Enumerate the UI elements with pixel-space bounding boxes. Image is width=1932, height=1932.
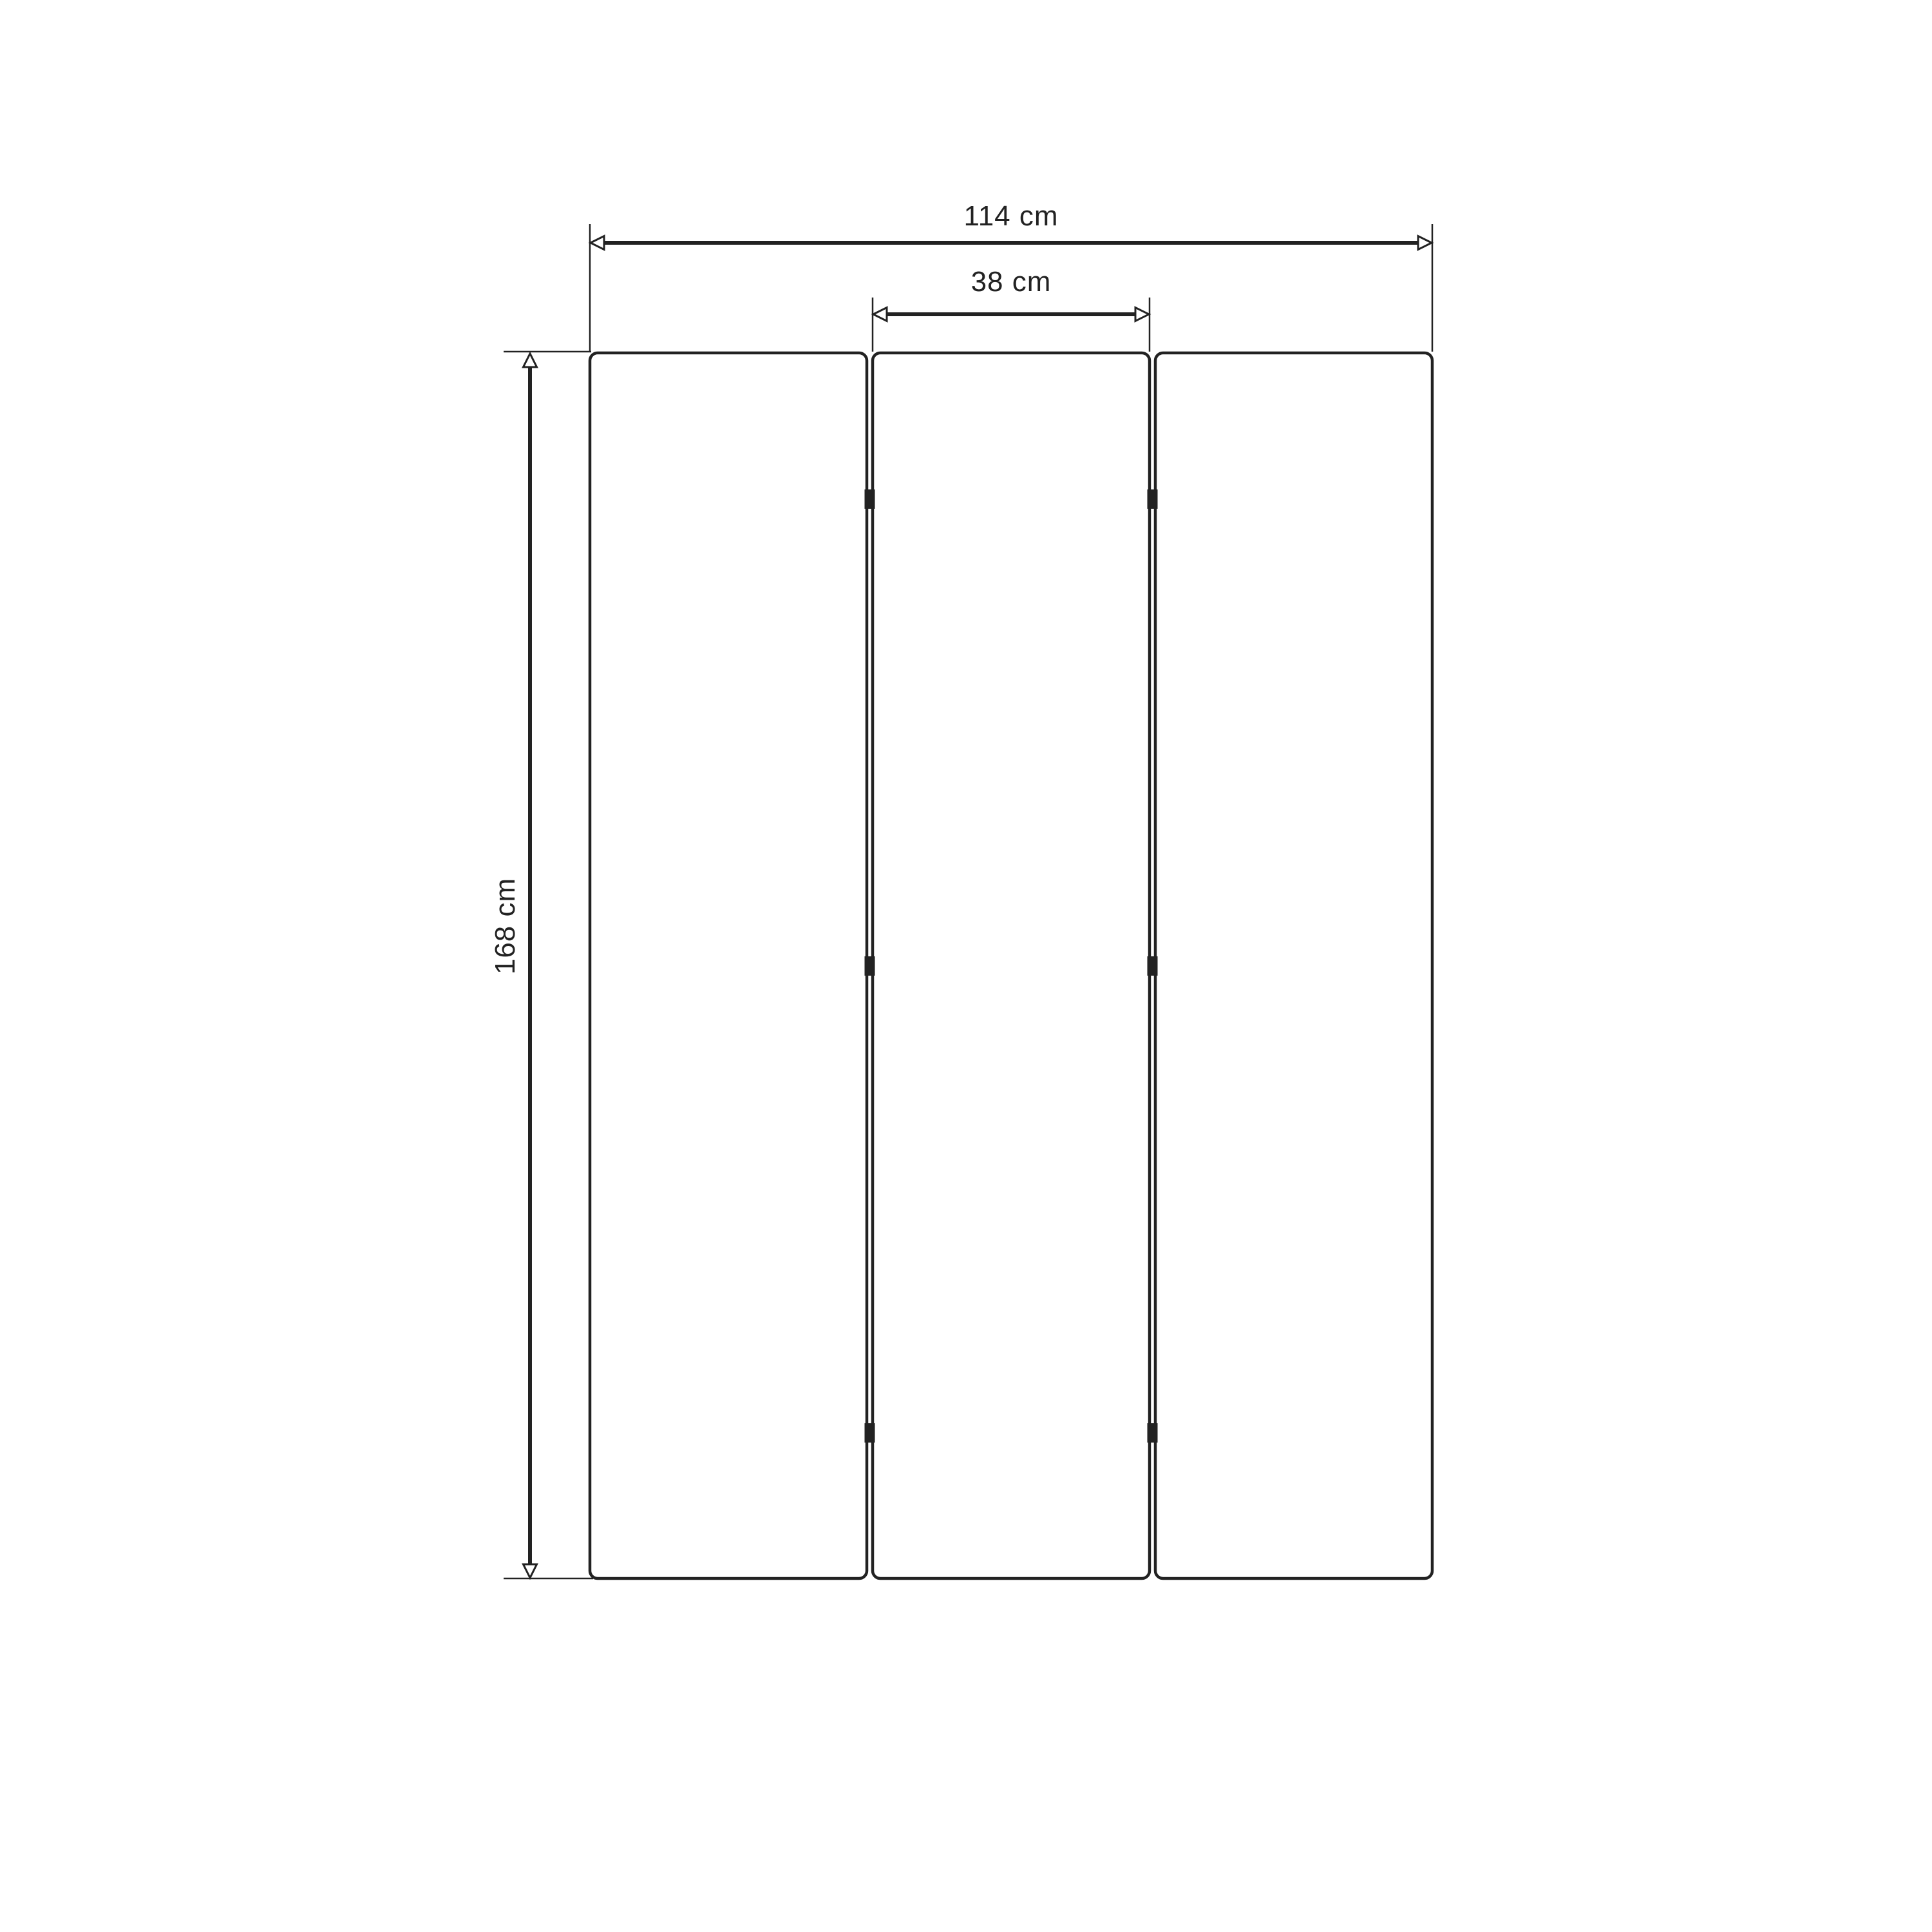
arrowhead-left-icon [873,308,887,321]
arrowhead-right-icon [1418,236,1432,250]
dimension-height: 168 cm [489,352,593,1578]
dimension-label-height: 168 cm [489,878,521,974]
arrowhead-left-icon [591,236,604,250]
hinge-mark [865,489,875,509]
arrowhead-down-icon [524,1564,537,1578]
panel-middle [873,353,1150,1578]
panels [590,353,1432,1578]
dimension-panel-width: 38 cm [873,266,1150,352]
dimension-label-total-width: 114 cm [963,200,1058,232]
hinge-mark [1148,489,1158,509]
arrowhead-up-icon [524,354,537,367]
panel-left [590,353,867,1578]
arrowhead-right-icon [1135,308,1149,321]
hinge-mark [1148,1423,1158,1443]
hinge-mark [865,956,875,976]
drawing-canvas: 114 cm 38 cm 168 cm [0,0,1932,1932]
dimension-label-panel-width: 38 cm [971,266,1052,298]
panel-dimension-diagram: 114 cm 38 cm 168 cm [0,0,1932,1932]
hinge-mark [865,1423,875,1443]
panel-right [1155,353,1432,1578]
hinge-mark [1148,956,1158,976]
